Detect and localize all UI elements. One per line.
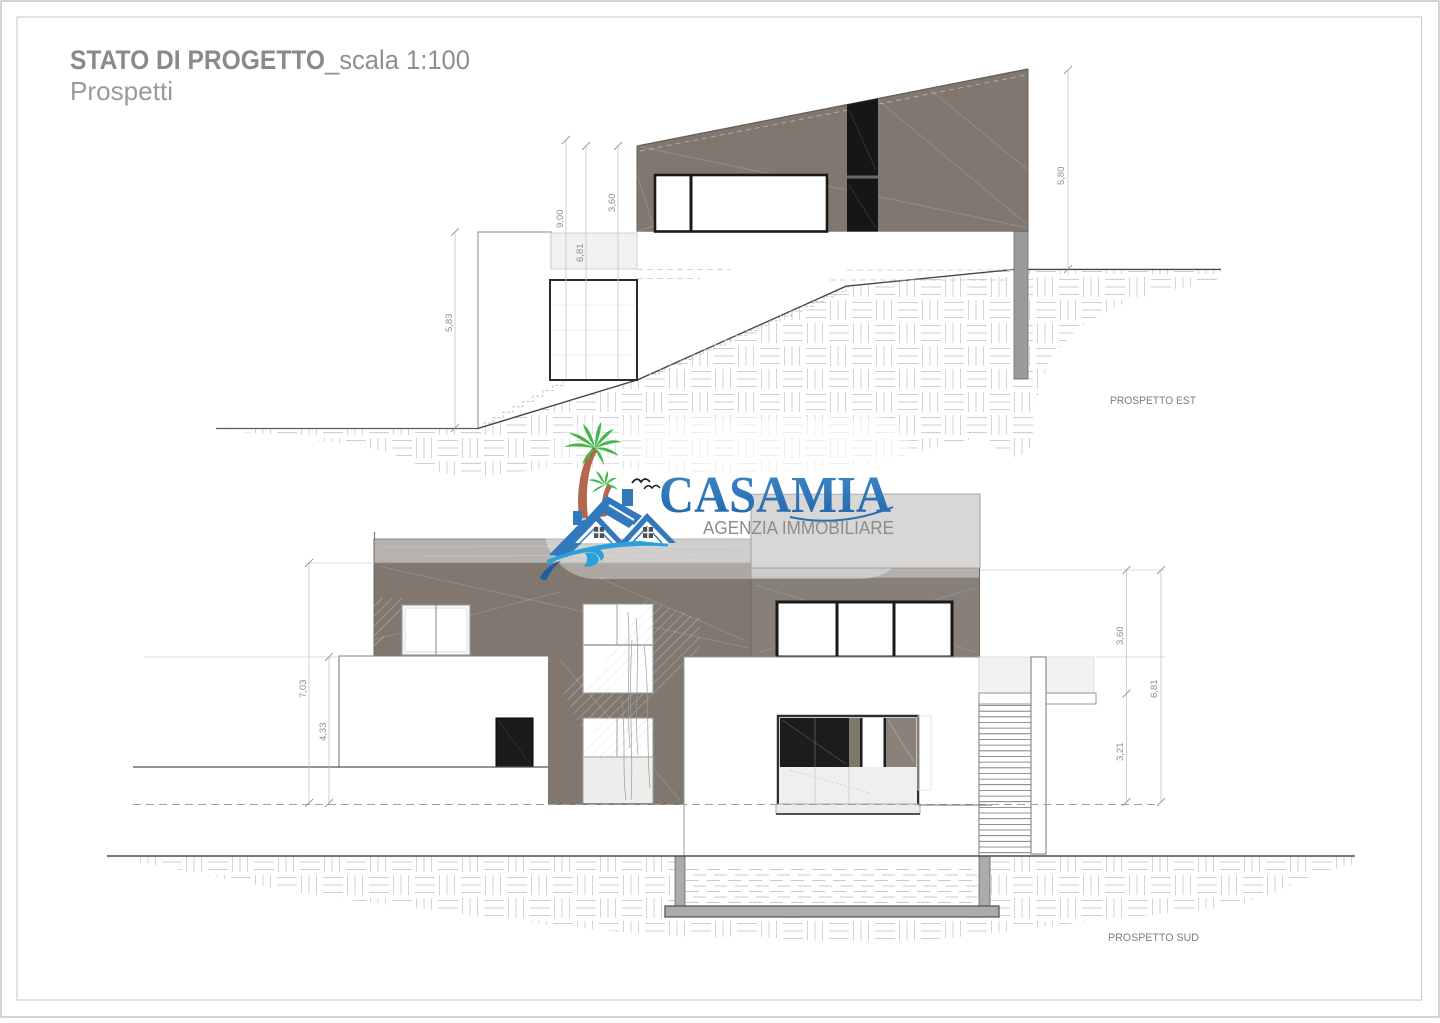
svg-text:Prospetti: Prospetti xyxy=(70,76,173,106)
svg-text:6,81: 6,81 xyxy=(1149,680,1160,699)
svg-text:6,81: 6,81 xyxy=(575,244,586,263)
svg-text:5,80: 5,80 xyxy=(1056,167,1067,186)
svg-text:3,60: 3,60 xyxy=(607,194,618,213)
svg-text:AGENZIA IMMOBILIARE: AGENZIA IMMOBILIARE xyxy=(703,517,894,538)
svg-text:9,00: 9,00 xyxy=(555,210,566,229)
svg-text:4,33: 4,33 xyxy=(318,723,329,742)
svg-text:STATO DI PROGETTO_scala 1:100: STATO DI PROGETTO_scala 1:100 xyxy=(70,45,470,75)
svg-text:7,03: 7,03 xyxy=(298,680,309,699)
svg-text:CASAMIA: CASAMIA xyxy=(659,467,891,524)
svg-text:3,60: 3,60 xyxy=(1115,627,1126,646)
svg-text:3,21: 3,21 xyxy=(1115,743,1126,762)
svg-text:5,83: 5,83 xyxy=(444,314,455,333)
svg-text:PROSPETTO EST: PROSPETTO EST xyxy=(1110,395,1196,407)
svg-text:PROSPETTO SUD: PROSPETTO SUD xyxy=(1108,932,1199,944)
